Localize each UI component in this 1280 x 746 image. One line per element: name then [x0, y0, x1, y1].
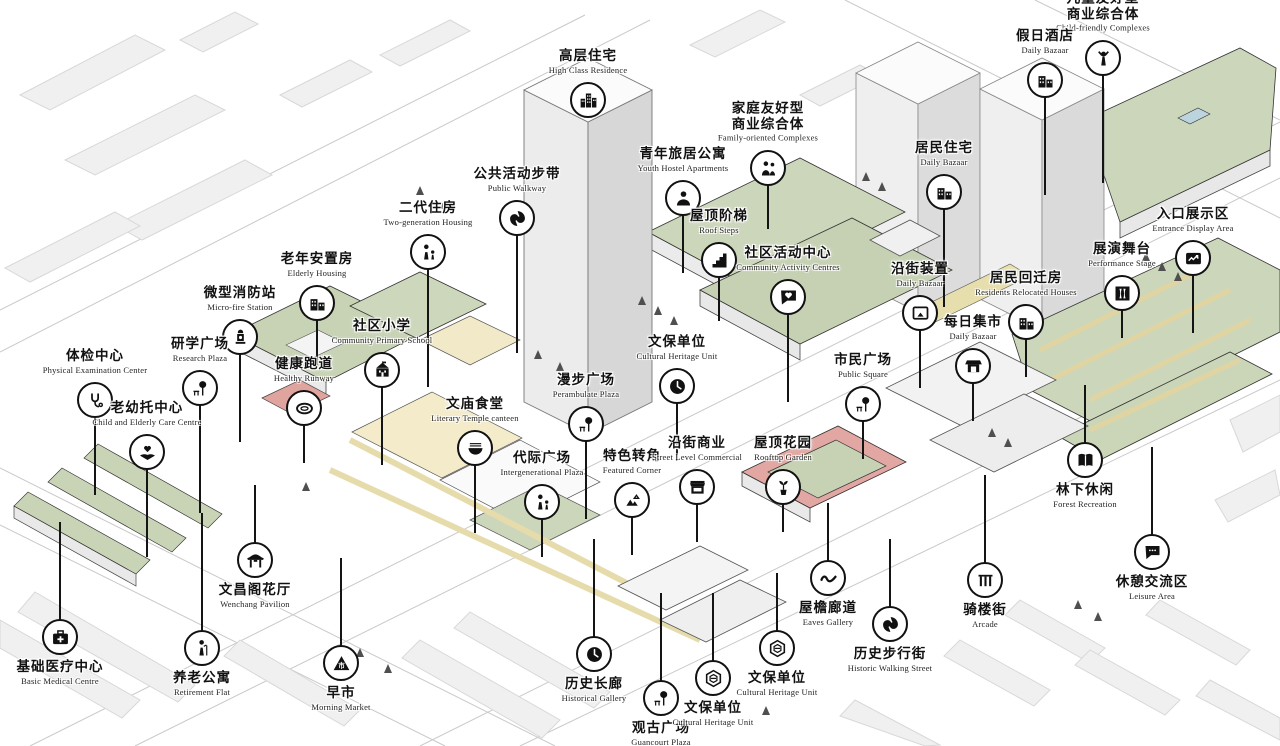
walkway-swirl-icon: [499, 200, 535, 236]
morning-market-leader-line: [340, 558, 342, 648]
youth-hostel-apartments-leader-line: [682, 213, 684, 273]
noodle-bowl-icon: [457, 430, 493, 466]
cultural-heritage-unit-1-leader-line: [676, 401, 678, 461]
hexagon-emblem-icon: [695, 660, 731, 696]
basic-medical-centre-leader-line: [59, 522, 61, 622]
child-friendly-complexes-leader-line: [1102, 73, 1104, 183]
entrance-display-area-leader-line: [1192, 273, 1194, 333]
tree-bench-icon: [182, 370, 218, 406]
perambulate-plaza-leader-line: [585, 439, 587, 519]
masterplan-canvas: 高层住宅High Class Residence儿童友好型 商业综合体Child…: [0, 0, 1280, 746]
intergenerational-plaza-leader-line: [541, 517, 543, 557]
stethoscope-icon: [77, 382, 113, 418]
retirement-flat-leader-line: [201, 513, 203, 633]
tree-bench-icon: [568, 406, 604, 442]
physical-examination-center-leader-line: [94, 415, 96, 495]
child-and-elderly-care-centre-leader-line: [146, 467, 148, 557]
corner-triangles-icon: [614, 482, 650, 518]
performance-stage-leader-line: [1121, 308, 1123, 338]
arcade-street-leader-line: [984, 475, 986, 565]
running-track-icon: [286, 390, 322, 426]
row-buildings-icon: [926, 174, 962, 210]
medical-kit-icon: [42, 619, 78, 655]
svg-text:市: 市: [338, 660, 345, 669]
family-figures-icon: [750, 150, 786, 186]
micro-fire-station-leader-line: [239, 352, 241, 442]
research-plaza-leader-line: [199, 403, 201, 513]
row-buildings-icon: [1008, 304, 1044, 340]
two-generation-housing-leader-line: [427, 267, 429, 387]
spiral-swirl-icon: [872, 606, 908, 642]
arcade-columns-icon: [967, 562, 1003, 598]
wave-line-icon: [810, 560, 846, 596]
leisure-area-leader-line: [1151, 447, 1153, 537]
market-stall-icon: [955, 348, 991, 384]
photo-chart-icon: [1175, 240, 1211, 276]
cultural-heritage-unit-2-leader-line: [776, 573, 778, 633]
roof-steps-leader-line: [718, 275, 720, 321]
stage-curtain-icon: [1104, 275, 1140, 311]
eaves-gallery-leader-line: [827, 503, 829, 563]
elderly-cane-icon: [184, 630, 220, 666]
pavilion-icon: [237, 542, 273, 578]
child-figure-icon: [1085, 40, 1121, 76]
community-activity-centre-leader-line: [787, 312, 789, 402]
fire-hydrant-icon: [222, 319, 258, 355]
historic-walking-street-leader-line: [889, 539, 891, 609]
chat-heart-icon: [770, 279, 806, 315]
hands-heart-icon: [129, 434, 165, 470]
tree-bench-icon: [845, 386, 881, 422]
street-level-commercial-leader-line: [696, 502, 698, 542]
elderly-housing-leader-line: [316, 318, 318, 368]
residents-housing-leader-line: [943, 207, 945, 307]
potted-plant-icon: [765, 469, 801, 505]
market-triangle-icon: 市: [323, 645, 359, 681]
community-primary-school-leader-line: [381, 385, 383, 465]
residents-relocated-houses-leader-line: [1025, 337, 1027, 377]
hexagon-emblem-icon: [759, 630, 795, 666]
storefront-icon: [679, 469, 715, 505]
guancourt-plaza-leader-line: [660, 593, 662, 683]
artwork-frame-icon: [902, 295, 938, 331]
public-walkway-leader-line: [516, 233, 518, 353]
row-buildings-icon: [299, 285, 335, 321]
city-buildings-icon: [570, 82, 606, 118]
adult-child-figures-icon: [524, 484, 560, 520]
wenchang-pavilion-leader-line: [254, 485, 256, 545]
school-building-icon: [364, 352, 400, 388]
chat-bubble-icon: [1134, 534, 1170, 570]
clock-icon: [576, 636, 612, 672]
cultural-heritage-unit-3-leader-line: [712, 593, 714, 663]
daily-bazaar-market-leader-line: [972, 381, 974, 421]
adult-child-figures-icon: [410, 234, 446, 270]
literary-temple-canteen-leader-line: [474, 463, 476, 533]
public-square-leader-line: [862, 419, 864, 459]
forest-recreation-leader-line: [1084, 385, 1086, 445]
tree-bench-icon: [643, 680, 679, 716]
row-buildings-icon: [1027, 62, 1063, 98]
family-oriented-complexes-leader-line: [767, 183, 769, 229]
healthy-runway-leader-line: [303, 423, 305, 463]
holiday-hotel-leader-line: [1044, 95, 1046, 195]
historical-gallery-leader-line: [593, 539, 595, 639]
clock-icon: [659, 368, 695, 404]
rooftop-garden-leader-line: [782, 502, 784, 532]
featured-corner-leader-line: [631, 515, 633, 555]
person-figure-icon: [665, 180, 701, 216]
open-book-icon: [1067, 442, 1103, 478]
stairs-icon: [701, 242, 737, 278]
street-installation-leader-line: [919, 328, 921, 388]
